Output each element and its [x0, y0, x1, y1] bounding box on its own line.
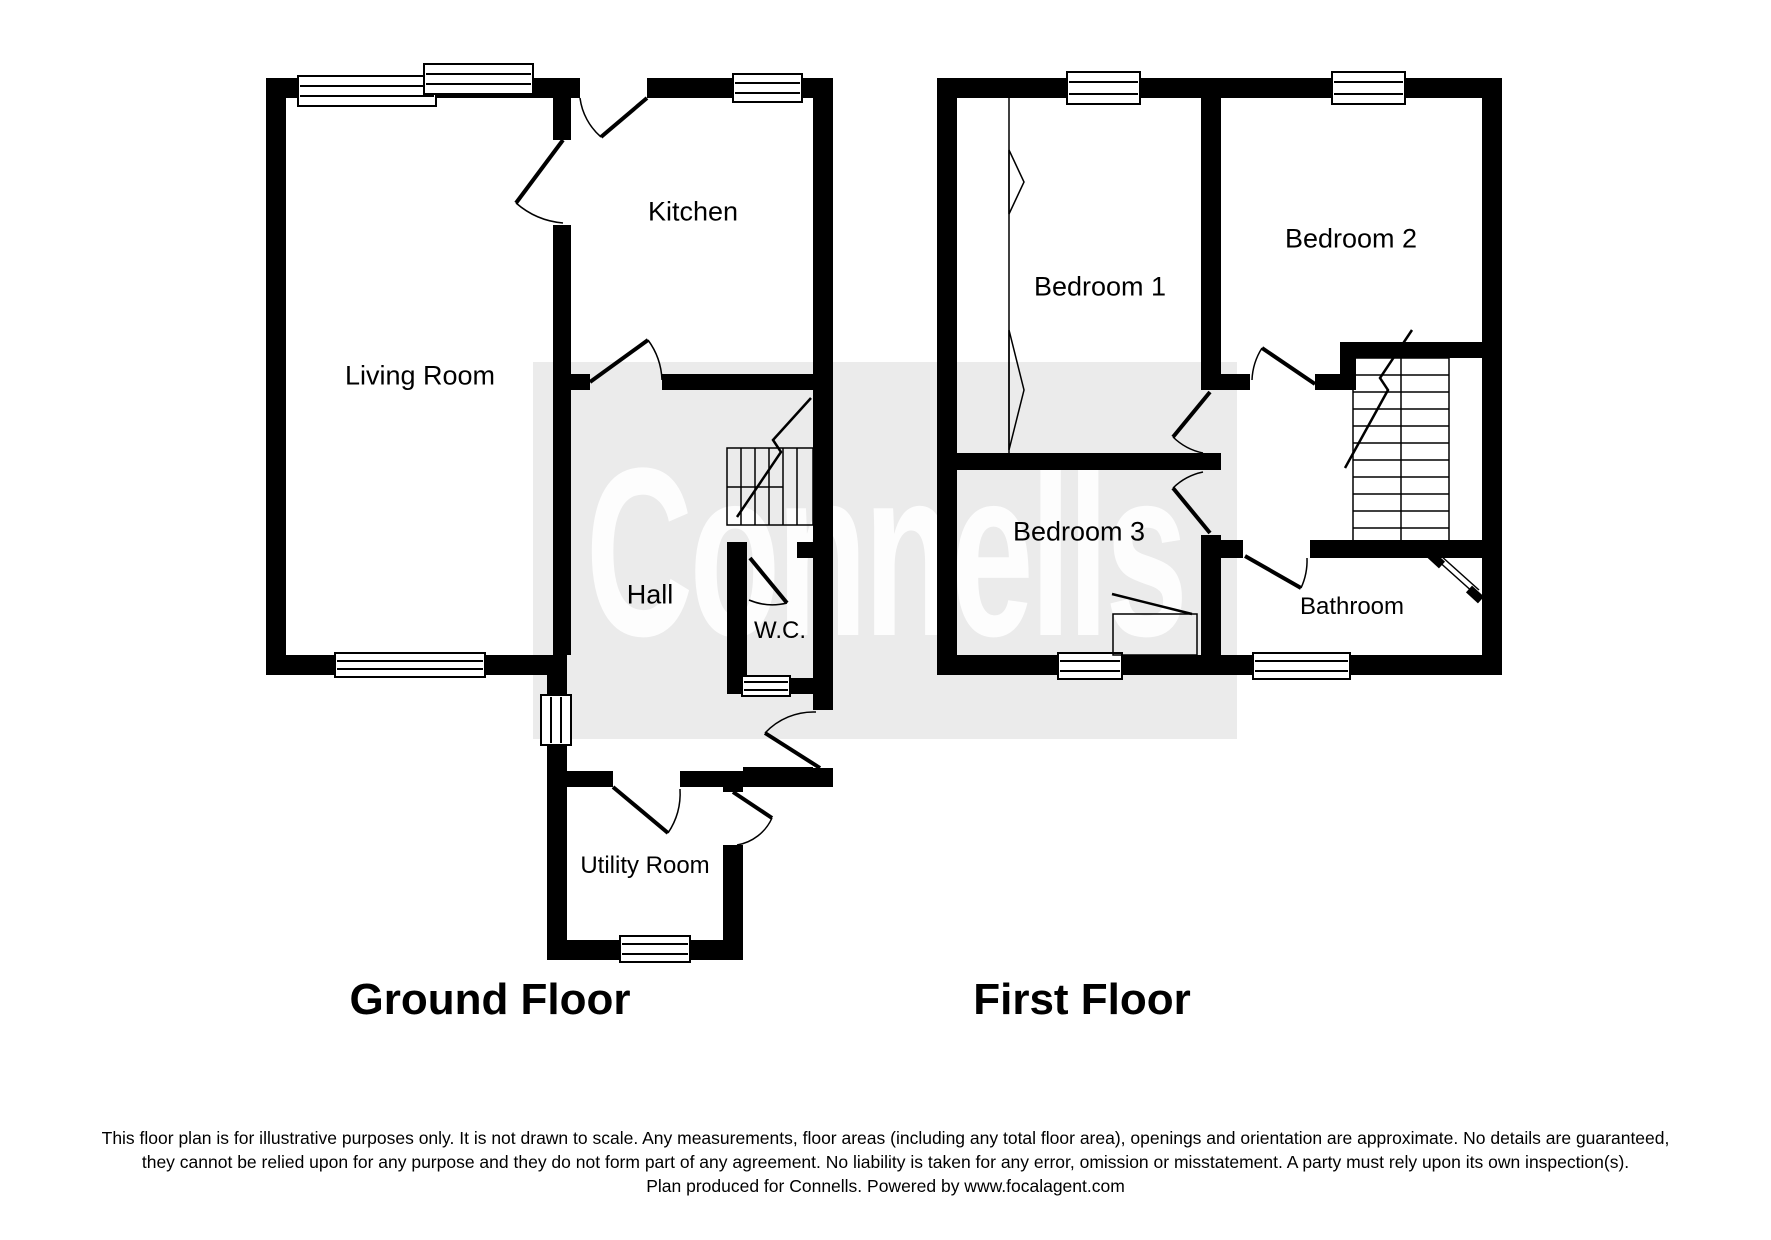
bedroom1-window — [1067, 72, 1140, 104]
room-label-bedroom2: Bedroom 2 — [1285, 224, 1417, 255]
disclaimer-line-1: This floor plan is for illustrative purp… — [0, 1126, 1771, 1150]
floorplan-drawing — [0, 0, 1771, 1240]
first-floor-walls — [937, 78, 1502, 675]
living-kitchen-door — [516, 140, 563, 223]
door-glyphs — [516, 98, 1315, 845]
disclaimer-line-2: they cannot be relied upon for any purpo… — [0, 1150, 1771, 1174]
bedroom3-window — [1058, 653, 1122, 679]
first-floor-stairs — [1345, 330, 1449, 545]
bedroom2-door — [1252, 348, 1315, 384]
kitchen-top-window — [733, 74, 802, 102]
ground-floor-title: Ground Floor — [349, 975, 630, 1025]
floorplan-page: Connells — [0, 0, 1771, 1240]
disclaimer-line-3: Plan produced for Connells. Powered by w… — [0, 1174, 1771, 1198]
window-glyphs — [298, 64, 1405, 962]
bathroom-corner-window — [1430, 554, 1481, 600]
room-label-bathroom: Bathroom — [1300, 593, 1404, 621]
utility-door — [613, 787, 680, 833]
bathroom-window — [1253, 653, 1350, 679]
utility-window — [620, 936, 690, 962]
hall-side-window — [541, 695, 571, 745]
kitchen-back-door — [580, 98, 647, 137]
kitchen-hall-door — [590, 340, 662, 382]
wc-window — [742, 676, 790, 696]
room-label-hall: Hall — [627, 580, 674, 611]
utility-side-door — [733, 792, 772, 845]
bedroom1-wardrobe — [1009, 98, 1024, 453]
disclaimer: This floor plan is for illustrative purp… — [0, 1126, 1771, 1198]
bedroom3-cupboard — [1112, 594, 1197, 655]
room-label-wc: W.C. — [754, 617, 806, 645]
bedroom2-window — [1332, 72, 1405, 104]
ground-floor-stairs — [727, 398, 813, 525]
bedroom3-door — [1173, 472, 1210, 533]
living-room-top-window-2 — [424, 64, 533, 94]
room-label-utility: Utility Room — [580, 852, 709, 880]
first-floor-title: First Floor — [973, 975, 1191, 1025]
living-room-bottom-window — [335, 653, 485, 677]
room-label-living-room: Living Room — [345, 361, 495, 392]
living-room-top-window-1 — [298, 76, 436, 106]
room-label-bedroom3: Bedroom 3 — [1013, 517, 1145, 548]
wc-door — [749, 558, 787, 605]
rear-door — [765, 712, 820, 768]
bedroom1-door — [1173, 392, 1210, 453]
ground-floor-walls — [266, 78, 833, 960]
bathroom-door — [1245, 556, 1307, 588]
room-label-kitchen: Kitchen — [648, 197, 738, 228]
room-label-bedroom1: Bedroom 1 — [1034, 272, 1166, 303]
